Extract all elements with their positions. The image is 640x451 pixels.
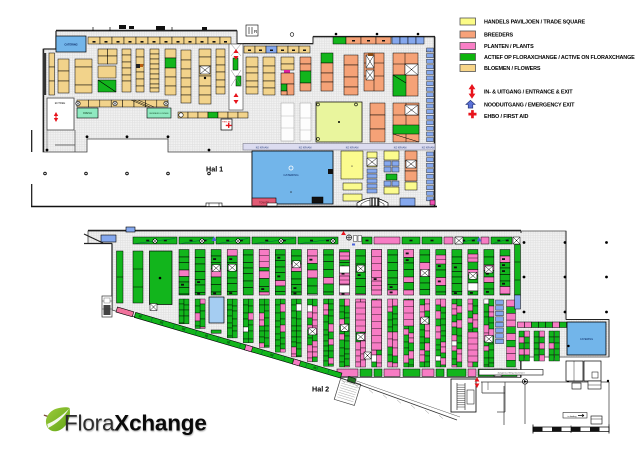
svg-text:Hal 2: Hal 2 xyxy=(312,385,329,394)
svg-text:CATERING: CATERING xyxy=(283,173,299,177)
svg-text:EHBO / FIRST AID: EHBO / FIRST AID xyxy=(484,114,528,120)
svg-text:KO KRAAM: KO KRAAM xyxy=(299,146,312,149)
svg-text:PLANTEN / PLANTS: PLANTEN / PLANTS xyxy=(484,44,534,50)
svg-text:FRESH: FRESH xyxy=(83,111,92,115)
svg-text:BREEDERS: BREEDERS xyxy=(484,33,514,39)
svg-text:ACTIEF OP FLORAXCHANGE / ACTIV: ACTIEF OP FLORAXCHANGE / ACTIVE ON FLORA… xyxy=(484,55,635,61)
svg-text:dangerous lifting movement: dangerous lifting movement xyxy=(498,372,525,375)
svg-text:CATERING: CATERING xyxy=(580,337,593,341)
svg-text:KO KRAAM: KO KRAAM xyxy=(394,146,407,149)
svg-text:FIRST AID: FIRST AID xyxy=(222,121,231,124)
svg-text:BLOEMEN / FLOWERS: BLOEMEN / FLOWERS xyxy=(484,66,541,72)
svg-text:CATERING: CATERING xyxy=(64,43,77,47)
svg-text:NOODUITGANG / EMERGENCY EXIT: NOODUITGANG / EMERGENCY EXIT xyxy=(484,103,575,109)
svg-text:ENTREE: ENTREE xyxy=(55,101,66,105)
svg-text:IN- & UITGANG / ENTRANCE & EXI: IN- & UITGANG / ENTRANCE & EXIT xyxy=(484,90,573,96)
svg-text:KO KRAAM: KO KRAAM xyxy=(422,146,435,149)
svg-text:FloraXchange: FloraXchange xyxy=(64,411,207,436)
svg-text:to loading: to loading xyxy=(568,415,577,418)
svg-text:KO-0: KO-0 xyxy=(426,51,432,53)
svg-text:HANDELS PAVILJOEN / TRADE SQUA: HANDELS PAVILJOEN / TRADE SQUARE xyxy=(484,20,586,26)
svg-text:Hal 1: Hal 1 xyxy=(206,165,223,174)
svg-text:KO KRAAM: KO KRAAM xyxy=(256,146,269,149)
svg-text:BUSINESS LOUNGE: BUSINESS LOUNGE xyxy=(149,113,169,115)
svg-text:KO KRAAM: KO KRAAM xyxy=(346,146,359,149)
